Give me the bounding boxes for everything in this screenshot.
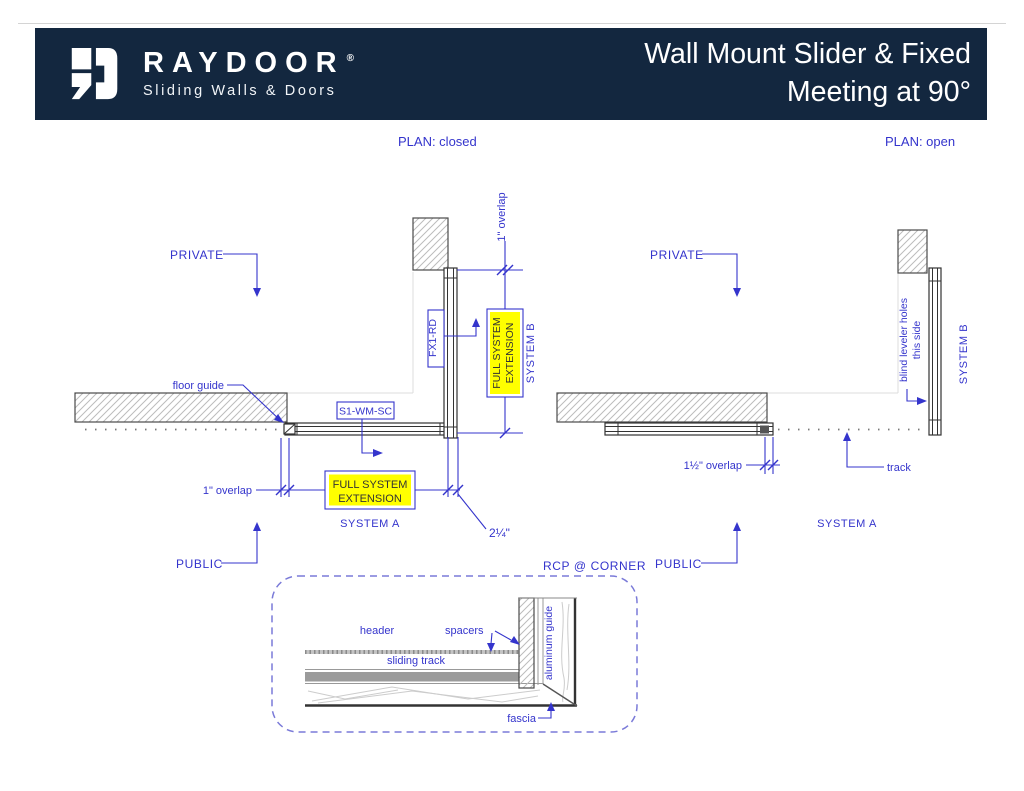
sliding-panel-horizontal-open <box>605 423 773 435</box>
public-label-left: PUBLIC <box>176 557 223 571</box>
plan-closed-caption: PLAN: closed <box>398 134 477 149</box>
private-leader-right <box>702 254 741 297</box>
fse-a-line1: FULL SYSTEM <box>333 479 408 491</box>
fse-b-line2: EXTENSION <box>504 323 516 384</box>
fascia-label: fascia <box>507 713 537 725</box>
blind-leveler-leader <box>907 389 927 405</box>
fse-a-line2: EXTENSION <box>338 493 402 505</box>
private-label-right: PRIVATE <box>650 248 704 262</box>
blind-leveler-line2: this side <box>911 321 923 360</box>
wall-top <box>413 218 448 270</box>
rcp-caption: RCP @ CORNER <box>543 559 646 573</box>
public-label-right: PUBLIC <box>655 557 702 571</box>
wall-top-open <box>898 230 927 273</box>
overlap-dimension-open <box>746 437 780 474</box>
corner-dimension-label: 2¼" <box>489 526 510 540</box>
floor-guide-symbol <box>284 424 295 434</box>
system-b-label-closed: SYSTEM B <box>525 323 537 383</box>
wall-left-open <box>557 393 767 422</box>
private-leader-left <box>223 254 261 297</box>
system-b-label-open: SYSTEM B <box>958 324 970 384</box>
track-label: track <box>887 462 911 474</box>
plan-closed: PLAN: closed <box>75 134 537 571</box>
corner-dimension-leader <box>458 494 486 529</box>
floor-guide-symbol-open <box>760 426 769 434</box>
drawing-canvas: PLAN: closed <box>0 0 1024 791</box>
track-leader <box>843 432 884 467</box>
plan-open-caption: PLAN: open <box>885 134 955 149</box>
corner-wall-strip <box>519 598 534 688</box>
fixed-panel-vertical-open <box>929 268 941 435</box>
aluminum-guide-label: aluminum guide <box>543 606 555 680</box>
plan-open: PLAN: open <box>557 134 970 571</box>
s1-model-label: S1-WM-SC <box>339 406 392 418</box>
sliding-track-label: sliding track <box>387 655 446 667</box>
spacers-label: spacers <box>445 625 484 637</box>
floor-guide-label: floor guide <box>173 380 224 392</box>
public-leader-right <box>701 522 741 563</box>
spacers-leaders <box>487 631 520 652</box>
fse-b-line1: FULL SYSTEM <box>491 317 503 388</box>
public-leader-left <box>221 522 261 563</box>
sliding-track-bar <box>305 672 519 682</box>
fascia-mitre-line <box>543 684 577 706</box>
overlap-label-open: 1½" overlap <box>684 460 742 472</box>
private-label-left: PRIVATE <box>170 248 224 262</box>
header-label: header <box>360 625 395 637</box>
fx1-model-label: FX1-RD <box>427 319 439 357</box>
fixed-panel-vertical <box>444 268 457 438</box>
sliding-panel-horizontal <box>285 423 453 435</box>
system-a-label-open: SYSTEM A <box>817 518 877 530</box>
overlap-bottom-label: 1" overlap <box>203 485 252 497</box>
system-a-label-closed: SYSTEM A <box>340 518 400 530</box>
overlap-top-label: 1" overlap <box>496 192 508 241</box>
wall-left <box>75 393 287 422</box>
blind-leveler-line1: blind leveler holes <box>898 298 910 382</box>
rcp-corner-detail: RCP @ CORNER <box>272 559 646 732</box>
